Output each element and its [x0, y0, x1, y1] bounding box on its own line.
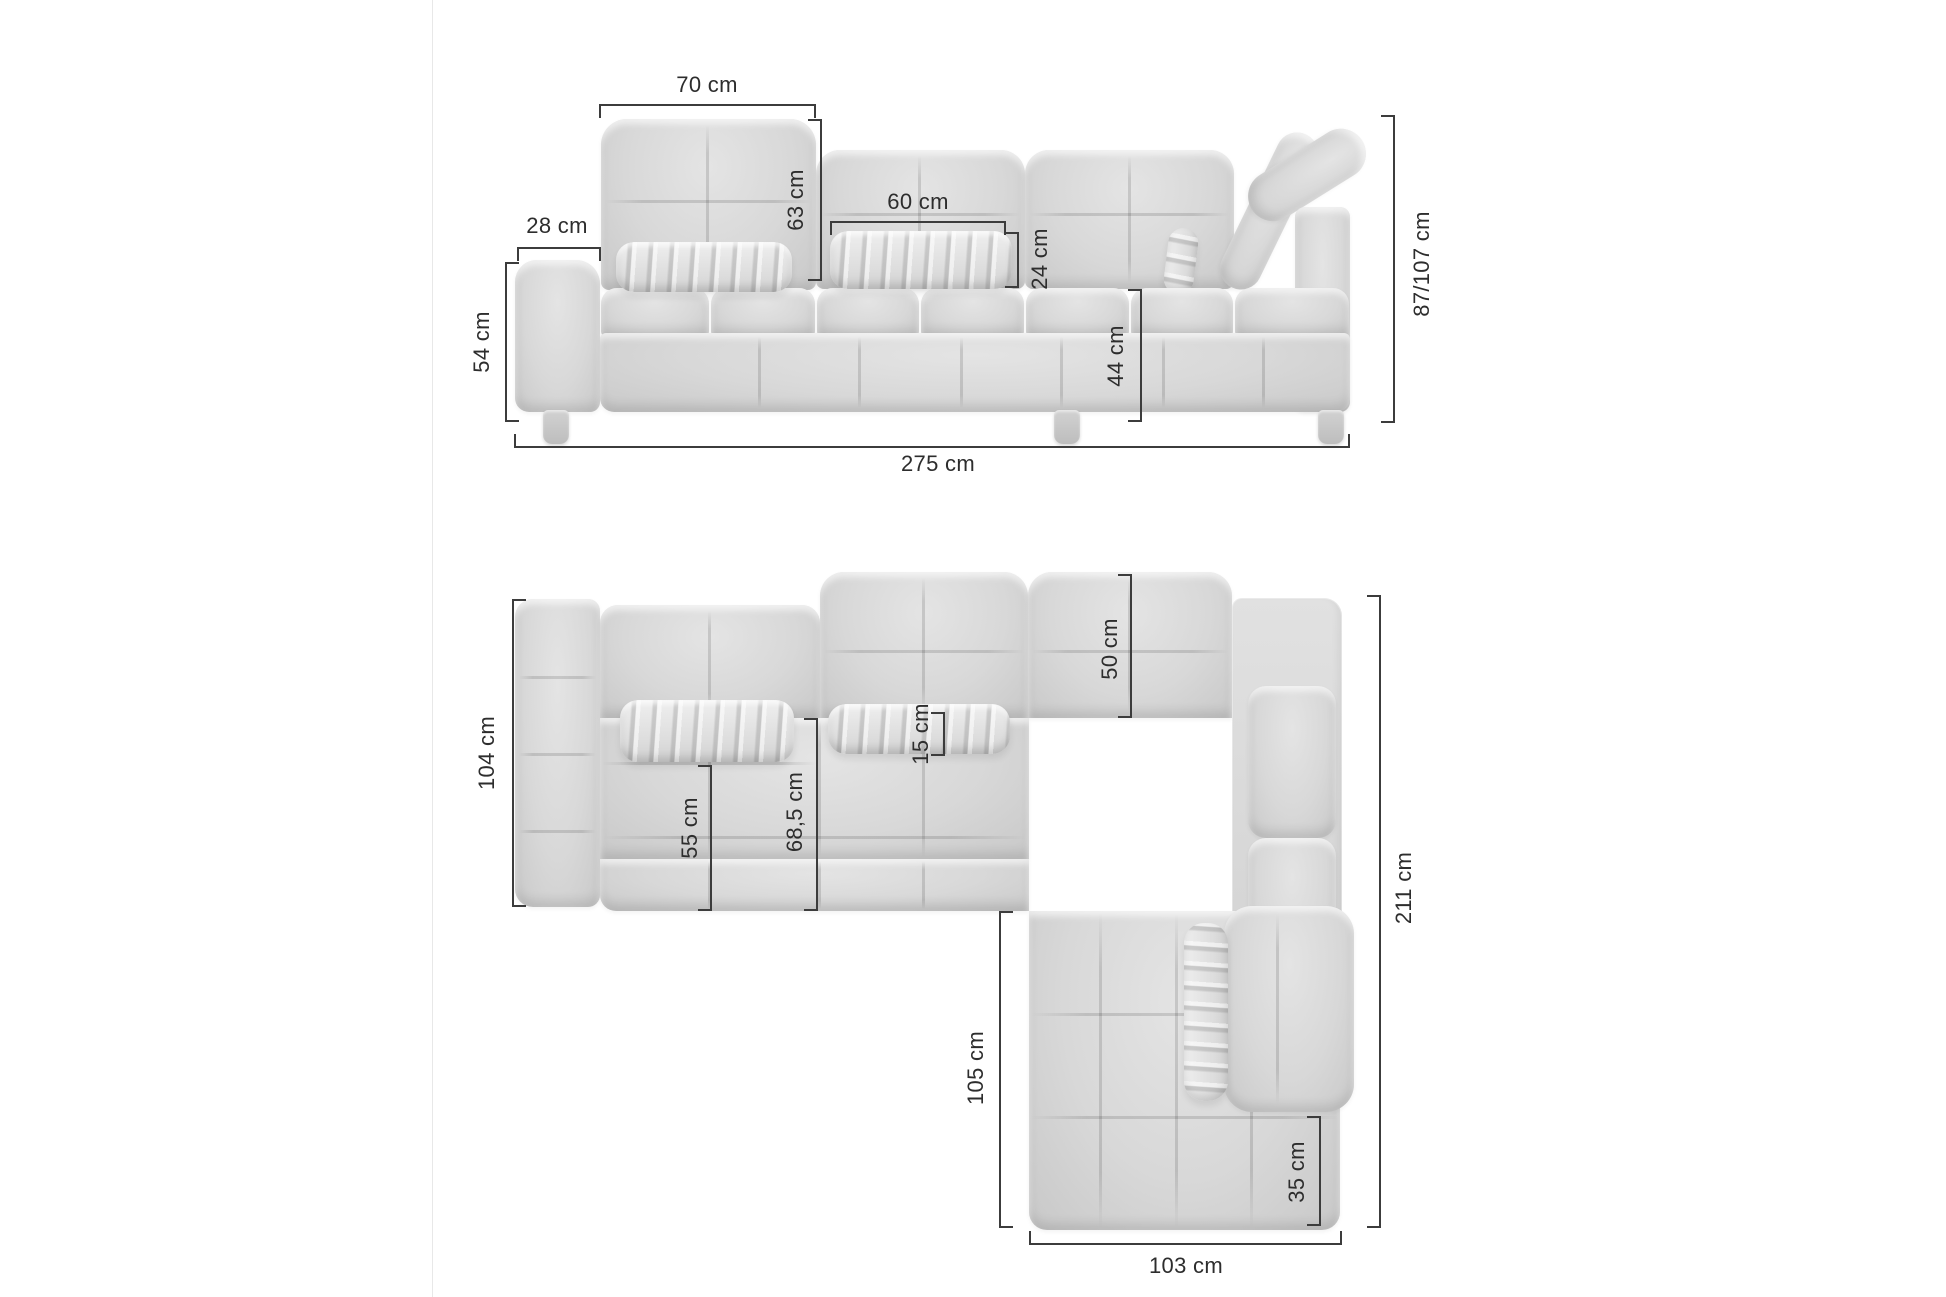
dim-tick: [1128, 289, 1142, 291]
dim-tick: [698, 909, 712, 911]
front-lumbar-pillow-left: [616, 242, 792, 292]
product-dimensions-image: 70 cm 63 cm 28 cm 60 cm 24 cm 54 cm 44 c…: [0, 0, 1946, 1297]
seam-line: [1099, 913, 1102, 1228]
seam-line: [1128, 156, 1131, 283]
seam-line: [1030, 213, 1229, 216]
dim-label-corner-width: 35 cm: [1284, 1141, 1310, 1202]
dim-line: [943, 712, 945, 756]
dim-line: [816, 718, 818, 911]
front-lumbar-pillow-middle: [830, 231, 1012, 289]
front-seat-cushion: [711, 288, 815, 337]
seam-line: [858, 337, 861, 408]
dim-line: [710, 765, 712, 911]
dim-tick: [1128, 420, 1142, 422]
dim-label-seat-height: 44 cm: [1103, 325, 1129, 386]
seam-line: [1276, 914, 1279, 1104]
seam-line: [818, 861, 821, 909]
dim-tick: [999, 1226, 1013, 1228]
dim-label-armrest-height: 54 cm: [469, 311, 495, 372]
dim-tick: [512, 599, 526, 601]
dim-tick: [1307, 1224, 1321, 1226]
dim-tick: [808, 279, 822, 281]
dim-line: [512, 599, 514, 907]
dim-line: [820, 119, 822, 281]
dim-tick: [1348, 434, 1350, 448]
dim-line: [599, 104, 816, 106]
dim-tick: [599, 247, 601, 261]
dim-tick: [1367, 595, 1381, 597]
dim-label-total-width: 275 cm: [901, 451, 975, 477]
dim-line: [999, 911, 1001, 1228]
dim-label-backrest-depth: 50 cm: [1097, 618, 1123, 679]
dim-tick: [1381, 421, 1395, 423]
seam-line: [758, 337, 761, 408]
seam-line: [1175, 913, 1178, 1228]
dim-tick: [512, 905, 526, 907]
dim-label-backrest-height: 63 cm: [783, 169, 809, 230]
front-armrest-left: [515, 260, 600, 412]
dim-tick: [1005, 286, 1019, 288]
plan-chaise-pillow: [1184, 923, 1228, 1101]
dim-label-pillow-width: 60 cm: [887, 189, 948, 215]
seam-line: [1262, 337, 1265, 408]
dim-line: [1029, 1243, 1342, 1245]
seam-line: [1162, 337, 1165, 408]
dim-tick: [698, 765, 712, 767]
plan-front-edge: [600, 859, 1029, 911]
dim-line: [517, 247, 601, 249]
front-seat-cushion: [921, 288, 1024, 337]
dim-line: [830, 221, 1006, 223]
dim-label-total-height: 87/107 cm: [1409, 211, 1435, 316]
seam-line: [922, 578, 925, 712]
dim-tick: [505, 262, 519, 264]
dim-tick: [999, 911, 1013, 913]
dim-line: [1393, 115, 1395, 423]
dim-tick: [1005, 232, 1019, 234]
front-leg: [1054, 410, 1080, 444]
dim-tick: [814, 104, 816, 118]
dim-line: [1140, 289, 1142, 422]
dim-label-side-length: 211 cm: [1391, 852, 1417, 924]
seam-line: [519, 676, 596, 679]
seam-line: [708, 611, 711, 712]
front-seat-cushion: [1131, 288, 1233, 337]
seam-line: [960, 337, 963, 408]
seam-line: [1060, 337, 1063, 408]
dim-tick: [1307, 1116, 1321, 1118]
front-seat-cushion: [817, 288, 919, 337]
front-leg: [543, 410, 569, 444]
dim-tick: [1381, 115, 1395, 117]
dim-tick: [1367, 1226, 1381, 1228]
dim-label-armrest-width: 28 cm: [526, 213, 587, 239]
seam-line: [602, 836, 1027, 839]
dim-tick: [804, 909, 818, 911]
dim-tick: [804, 718, 818, 720]
dim-line: [1319, 1116, 1321, 1226]
dim-tick: [808, 119, 822, 121]
front-seat-cushion: [601, 288, 709, 337]
dim-tick: [1340, 1231, 1342, 1245]
seam-line: [1031, 1116, 1338, 1119]
dim-label-sofa-depth: 104 cm: [474, 716, 500, 790]
seam-line: [519, 753, 596, 756]
dim-tick: [517, 247, 519, 261]
seam-line: [824, 650, 1024, 653]
dim-label-chaise-length: 105 cm: [963, 1031, 989, 1105]
dim-label-pillow-depth: 15 cm: [908, 703, 934, 764]
dim-tick: [1118, 574, 1132, 576]
dim-tick: [1118, 716, 1132, 718]
seam-line: [922, 861, 925, 909]
dim-label-seat-depth-full: 68,5 cm: [782, 772, 808, 852]
dim-tick: [514, 434, 516, 448]
dim-label-backrest-width: 70 cm: [676, 72, 737, 98]
front-leg: [1318, 410, 1344, 444]
dim-line: [505, 262, 507, 422]
dim-label-seat-depth: 55 cm: [677, 797, 703, 858]
plan-lumbar-pillow-left: [620, 700, 794, 762]
dim-line: [1379, 595, 1381, 1228]
dim-line: [1017, 232, 1019, 288]
front-base: [600, 333, 1350, 412]
plan-chaise-arm-cushion: [1224, 906, 1354, 1112]
dim-tick: [599, 104, 601, 118]
dim-label-chaise-width: 103 cm: [1149, 1253, 1223, 1279]
dim-line: [514, 446, 1350, 448]
dim-tick: [505, 420, 519, 422]
dim-tick: [1029, 1231, 1031, 1245]
seam-line: [606, 200, 811, 203]
page-divider-line: [432, 0, 433, 1297]
plan-armrest-right-cushion: [1248, 686, 1336, 838]
dim-label-pillow-height: 24 cm: [1027, 228, 1053, 289]
dim-line: [1130, 574, 1132, 718]
front-seat-cushion: [1235, 288, 1349, 337]
dim-tick: [830, 221, 832, 235]
seam-line: [519, 830, 596, 833]
